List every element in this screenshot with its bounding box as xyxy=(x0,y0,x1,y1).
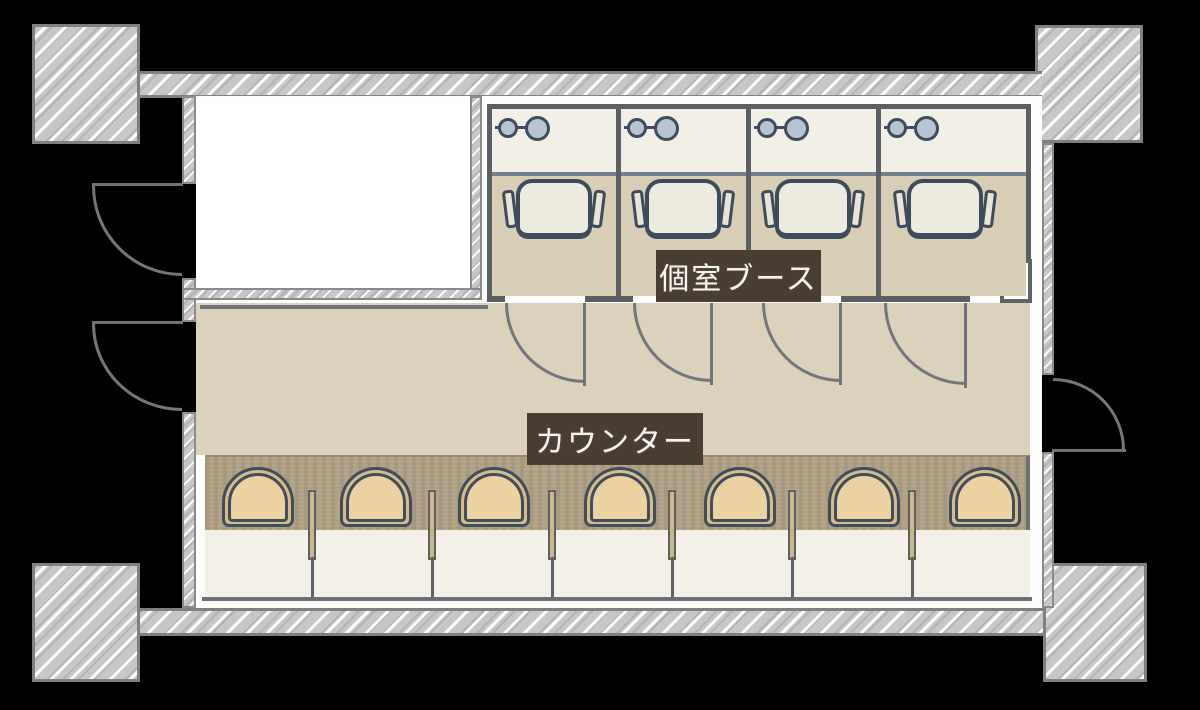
booth-door-swing-arc xyxy=(633,303,712,382)
counter-label: カウンター xyxy=(527,413,703,465)
booth-door-swing-arc xyxy=(505,303,585,383)
booth-door-leaf xyxy=(839,303,842,385)
entrance-door-swing-arc xyxy=(92,186,182,276)
booth-door-leaf xyxy=(710,303,713,385)
booth-door-leaf xyxy=(583,303,586,386)
doors-layer xyxy=(0,0,1200,710)
entrance-door-swing-arc xyxy=(92,324,182,411)
side-door-swing-arc xyxy=(1053,378,1125,450)
booth-door-swing-arc xyxy=(884,303,966,385)
booth-door-leaf xyxy=(964,303,967,388)
booth-door-swing-arc xyxy=(762,303,841,382)
booth-area-label: 個室ブース xyxy=(656,250,821,302)
floor-plan: 個室ブース カウンター xyxy=(0,0,1200,710)
